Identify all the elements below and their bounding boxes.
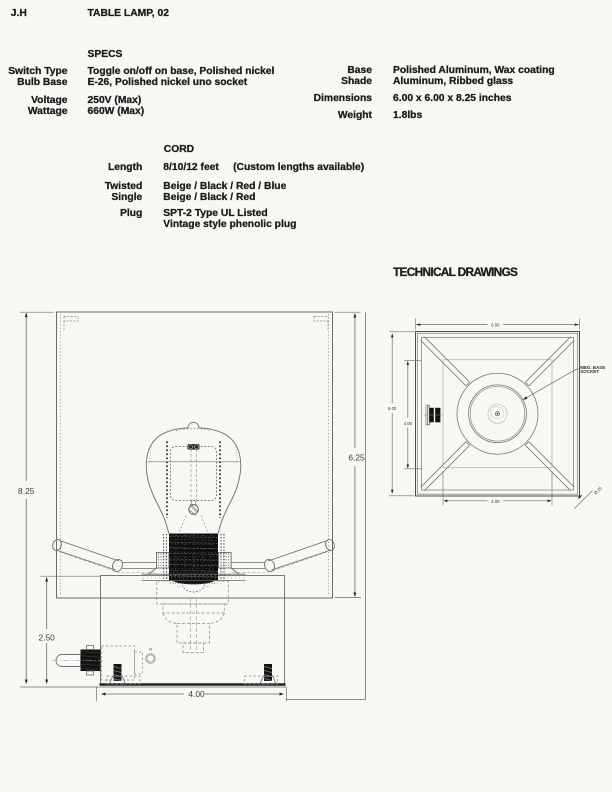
svg-text:6.00: 6.00 [491, 323, 500, 328]
svg-text:4.00: 4.00 [188, 689, 205, 699]
svg-text:4.00: 4.00 [491, 499, 500, 504]
svg-text:4.00: 4.00 [404, 421, 413, 426]
svg-text:▮▮: ▮▮ [149, 647, 153, 651]
svg-text:6.25: 6.25 [348, 453, 365, 463]
svg-text:8.25: 8.25 [18, 486, 35, 496]
svg-text:Ø.25: Ø.25 [593, 485, 603, 495]
svg-text:2.50: 2.50 [39, 633, 56, 643]
svg-text:6.00: 6.00 [388, 406, 397, 411]
